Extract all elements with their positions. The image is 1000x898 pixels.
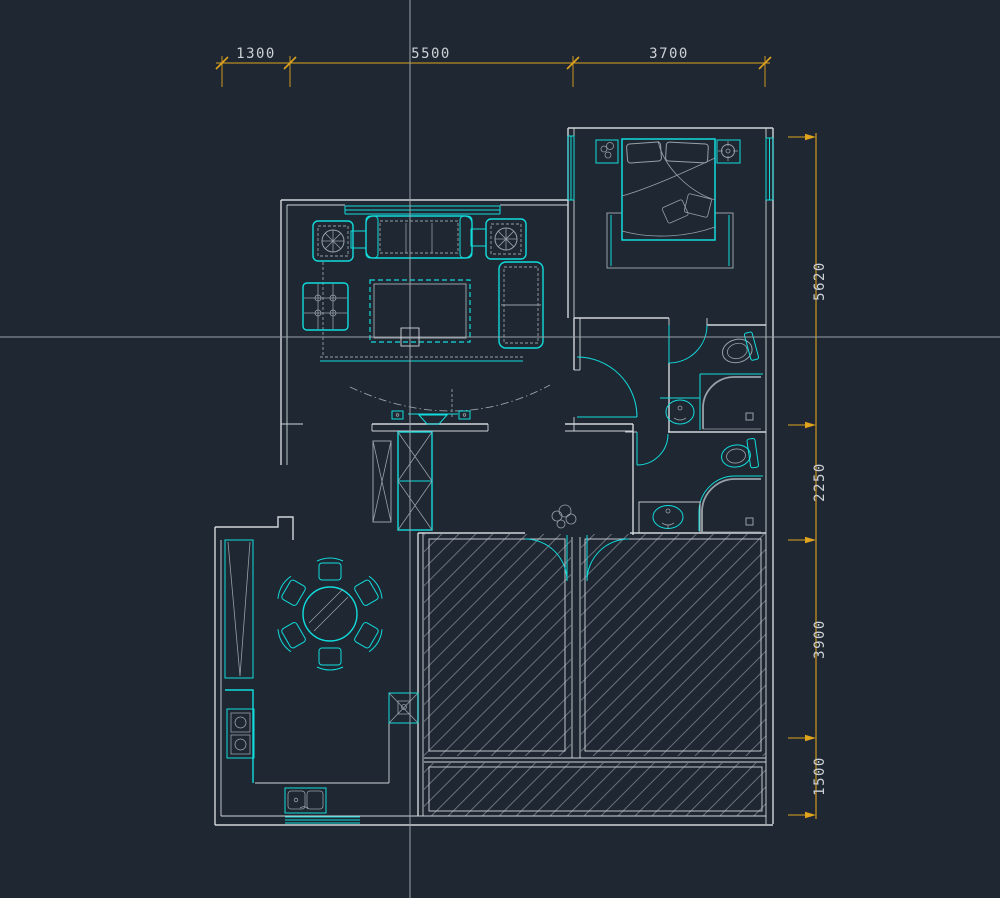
corner-shower [699, 476, 763, 532]
shoe-cabinet [373, 441, 391, 522]
nightstand-lamp [717, 140, 740, 163]
washbasin [666, 400, 694, 424]
cad-drawing-area[interactable]: 1300 5500 3700 5620 2250 3900 1500 [0, 0, 1000, 898]
dimension-label: 2250 [812, 462, 828, 502]
dimension-label: 5500 [411, 46, 451, 62]
kitchen-counter [225, 690, 253, 783]
stove [227, 709, 254, 758]
master-bedroom [596, 139, 740, 268]
dining-chair [275, 575, 307, 609]
balcony-strip-floor [424, 763, 766, 816]
corner-shower [700, 374, 763, 430]
ensuite-bath-door [669, 325, 707, 363]
coffee-table [370, 280, 470, 342]
plant [552, 505, 576, 528]
armchair-left [313, 221, 353, 261]
ensuite-bathroom [660, 332, 763, 430]
dimension-label: 3900 [812, 619, 828, 659]
round-dining-table [303, 587, 357, 641]
ceiling-centerline-arc [350, 385, 550, 411]
dimension-label: 3700 [649, 46, 689, 62]
bedroom-window-right [766, 138, 773, 200]
second-bathroom [639, 438, 763, 533]
double-sink [285, 788, 326, 813]
floor-plan-svg[interactable]: 1300 5500 3700 5620 2250 3900 1500 [0, 0, 1000, 898]
dimension-chain-top: 1300 5500 3700 [216, 46, 771, 87]
vanity [639, 502, 700, 533]
lattice-plant-box [303, 283, 348, 330]
entry-cabinet [398, 432, 432, 530]
dining-chair [275, 620, 307, 654]
unfurnished-room-floor [424, 534, 766, 756]
double-bed [622, 139, 715, 240]
tall-cabinet [225, 540, 253, 678]
dining-chair [353, 620, 385, 654]
toilet [720, 438, 759, 472]
dining-room [225, 540, 385, 678]
nightstand-plant [596, 140, 618, 163]
hallway-door [577, 357, 637, 417]
dimension-label: 5620 [812, 261, 828, 301]
three-seat-sofa [366, 216, 472, 258]
bedroom-window-left [568, 136, 574, 200]
hatched-rooms [424, 534, 766, 816]
armchair-right [486, 219, 526, 259]
entry-hall [373, 411, 576, 530]
side-table-right [471, 229, 486, 246]
dining-chair [353, 575, 385, 609]
dining-chair [317, 558, 343, 580]
ceiling-lamp [392, 411, 470, 424]
living-room-window [345, 206, 500, 214]
second-bath-door [637, 432, 668, 465]
service-column [389, 693, 418, 723]
dimension-label: 1500 [812, 756, 828, 796]
dining-chair [317, 648, 343, 670]
living-room-sofa-set [303, 216, 543, 361]
kitchen-window [285, 817, 360, 823]
dimension-chain-right: 5620 2250 3900 1500 [788, 133, 828, 819]
chaise [499, 262, 543, 348]
dimension-label: 1300 [236, 46, 276, 62]
